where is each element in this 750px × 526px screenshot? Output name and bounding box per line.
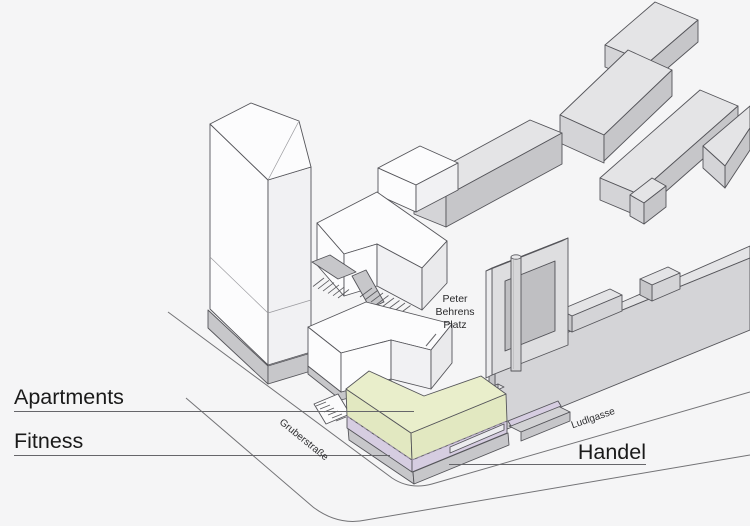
tower-building [208,103,311,384]
tower-right-face [268,167,311,365]
axonometric-scene: Apartments Fitness Handel Peter Behrens … [0,0,750,526]
context-buildings-northeast [414,2,750,227]
site-diagram: Apartments Fitness Handel Peter Behrens … [0,0,750,526]
platz-line-1: Peter [442,293,468,305]
ludlgasse-label: Ludlgasse [570,406,617,431]
gruberstrasse-label: Gruberstraße [277,417,330,463]
portal-frame-side [486,268,492,378]
apartments-label: Apartments [14,385,124,409]
chimney [511,255,521,371]
platz-line-3: Platz [443,319,466,331]
fitness-label: Fitness [14,429,83,453]
behrens-building-ensemble [478,238,750,438]
handel-label: Handel [578,440,646,464]
platz-line-2: Behrens [435,306,474,318]
